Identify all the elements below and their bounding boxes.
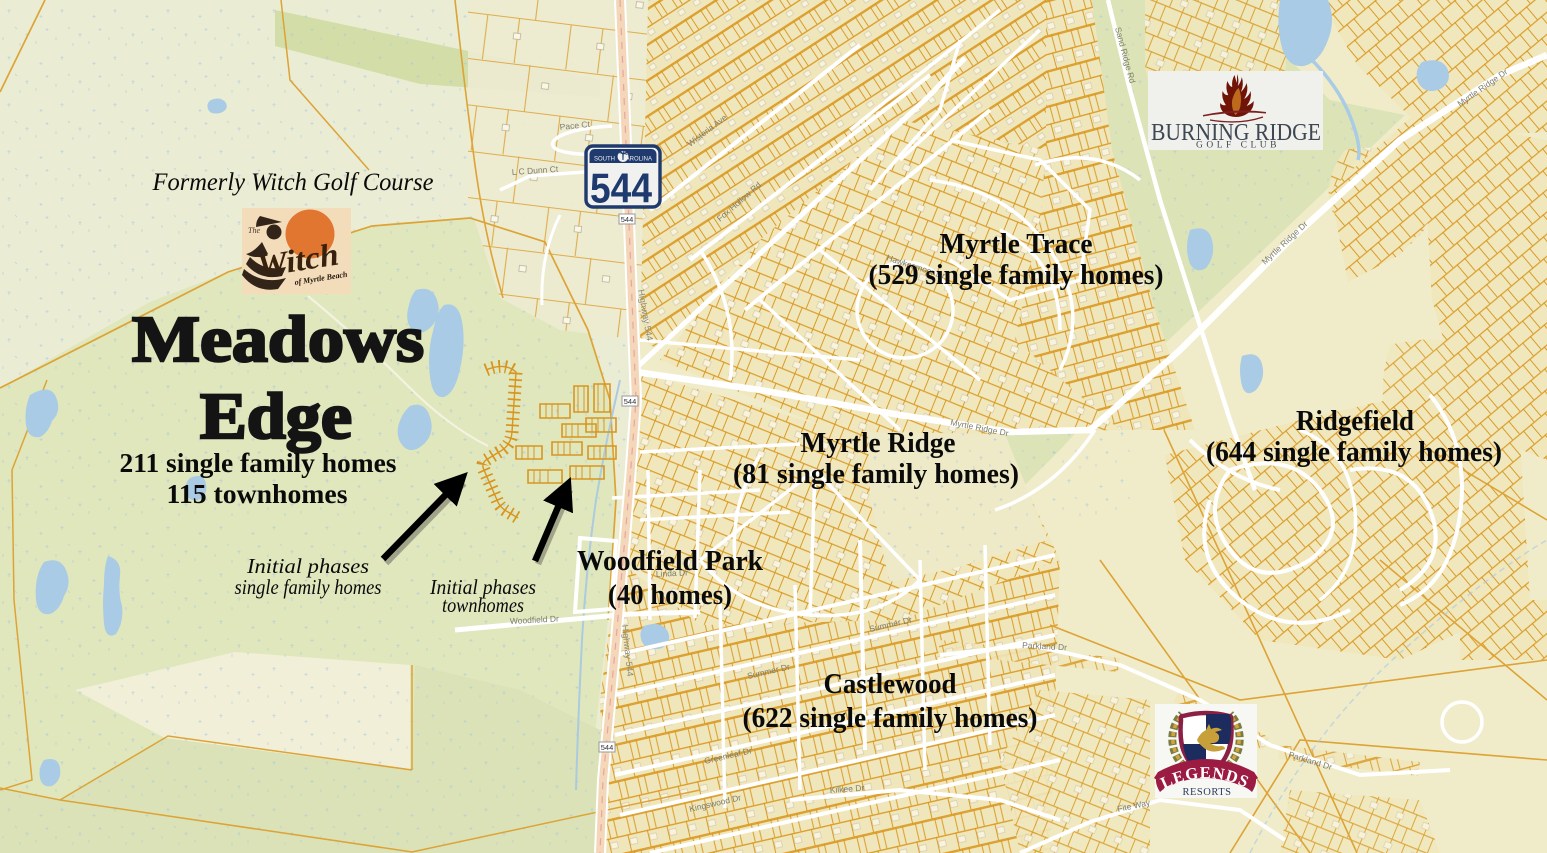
svg-text:(40 homes): (40 homes) xyxy=(608,580,732,611)
svg-text:Myrtle Trace: Myrtle Trace xyxy=(940,229,1093,260)
svg-text:townhomes: townhomes xyxy=(442,593,524,617)
svg-text:single family homes: single family homes xyxy=(235,575,382,599)
svg-text:115 townhomes: 115 townhomes xyxy=(167,479,348,509)
svg-text:Woodfield Park: Woodfield Park xyxy=(577,546,763,577)
svg-text:SOUTH: SOUTH xyxy=(594,157,615,163)
svg-text:GOLF CLUB: GOLF CLUB xyxy=(1196,141,1280,151)
svg-text:(622 single family homes): (622 single family homes) xyxy=(743,703,1038,734)
svg-text:Formerly Witch Golf Course: Formerly Witch Golf Course xyxy=(152,169,434,196)
svg-text:Castlewood: Castlewood xyxy=(824,669,957,700)
svg-text:(644 single family homes): (644 single family homes) xyxy=(1206,437,1502,468)
svg-text:544: 544 xyxy=(601,743,614,752)
svg-text:Edge: Edge xyxy=(200,380,352,453)
svg-text:Meadows: Meadows xyxy=(132,303,424,376)
svg-text:The: The xyxy=(248,226,260,235)
svg-text:544: 544 xyxy=(590,165,653,212)
svg-text:544: 544 xyxy=(624,397,637,406)
svg-text:Myrtle Ridge: Myrtle Ridge xyxy=(801,428,956,459)
svg-text:Ridgefield: Ridgefield xyxy=(1296,406,1414,437)
svg-text:RESORTS: RESORTS xyxy=(1183,787,1232,798)
svg-text:(529 single family homes): (529 single family homes) xyxy=(869,260,1164,291)
svg-text:211 single family homes: 211 single family homes xyxy=(120,448,397,478)
svg-text:544: 544 xyxy=(621,215,634,224)
svg-text:(81 single family homes): (81 single family homes) xyxy=(733,459,1019,490)
